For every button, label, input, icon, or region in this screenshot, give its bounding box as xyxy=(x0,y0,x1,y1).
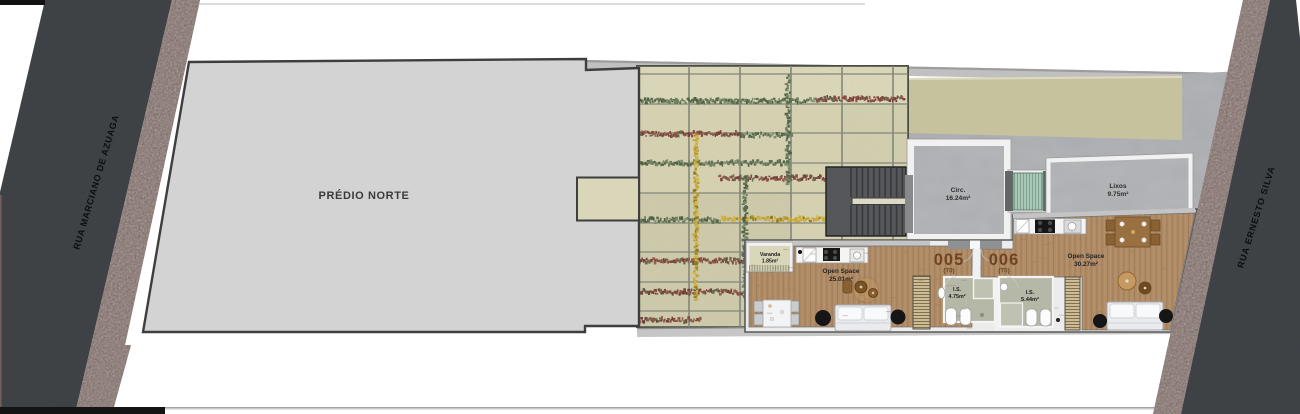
svg-text:30.27m²: 30.27m² xyxy=(1074,261,1098,268)
svg-text:Open Space: Open Space xyxy=(1068,253,1105,260)
svg-text:Lixos: Lixos xyxy=(1109,183,1127,190)
svg-text:Open Space: Open Space xyxy=(823,268,860,275)
svg-text:(T0): (T0) xyxy=(998,268,1009,275)
svg-text:9.75m²: 9.75m² xyxy=(1108,191,1130,198)
svg-text:PRÉDIO NORTE: PRÉDIO NORTE xyxy=(319,189,410,202)
svg-text:006: 006 xyxy=(989,251,1020,269)
svg-text:Circ.: Circ. xyxy=(951,187,966,194)
svg-text:005: 005 xyxy=(934,251,965,269)
svg-text:(T0): (T0) xyxy=(943,268,954,275)
svg-text:5.44m²: 5.44m² xyxy=(1021,296,1039,303)
svg-text:I.S.: I.S. xyxy=(1026,290,1035,296)
svg-text:16.24m²: 16.24m² xyxy=(946,195,971,202)
svg-text:Varanda: Varanda xyxy=(760,252,780,258)
svg-text:4.75m²: 4.75m² xyxy=(948,294,965,300)
svg-text:1.85m²: 1.85m² xyxy=(762,259,779,265)
svg-text:I.S.: I.S. xyxy=(953,287,962,293)
